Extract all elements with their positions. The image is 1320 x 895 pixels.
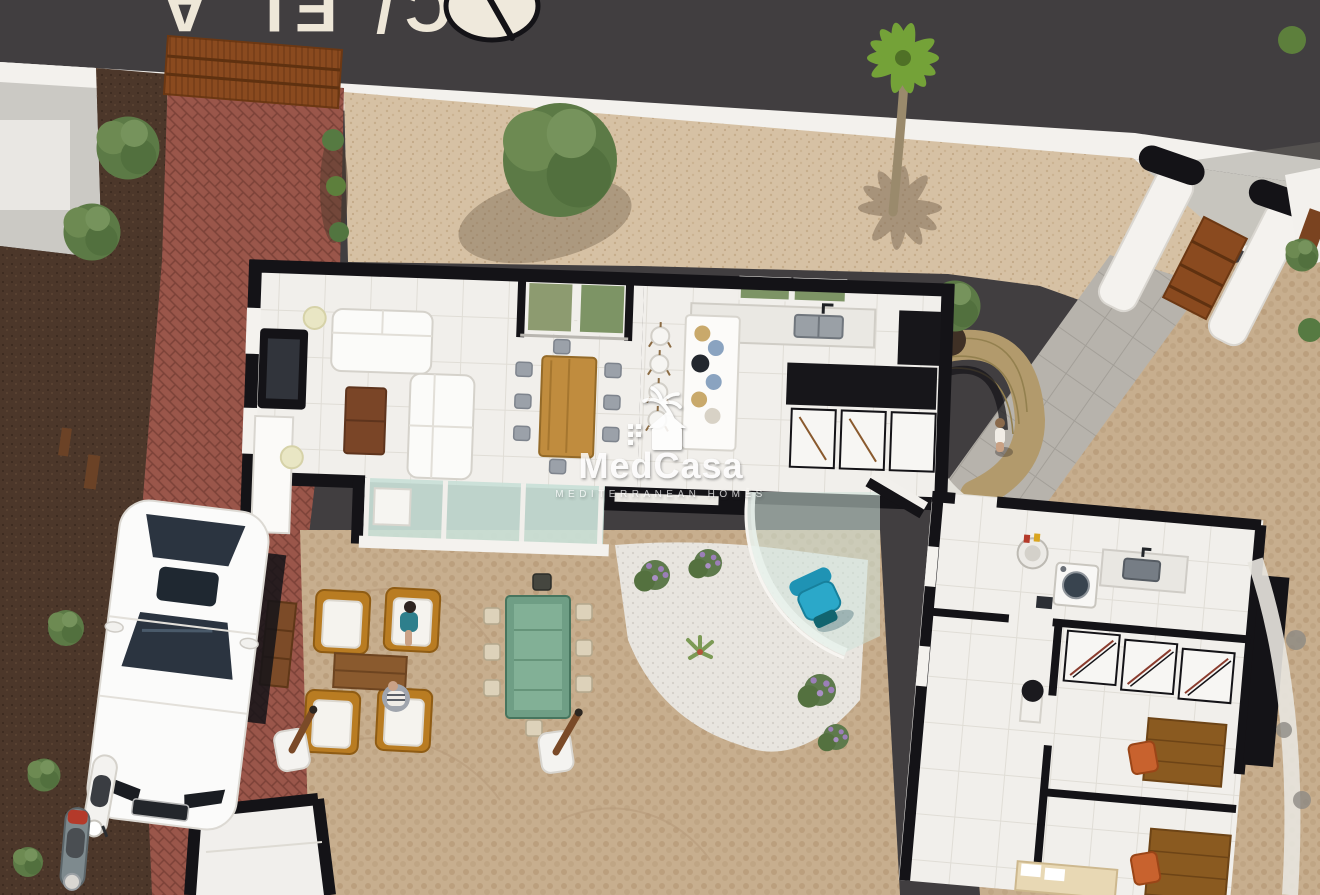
desk-chair (1130, 851, 1161, 885)
outdoor-chair (484, 680, 500, 696)
coffee-table (344, 387, 386, 454)
base-cabinet (890, 412, 936, 472)
wardrobe (1178, 649, 1234, 703)
watermark-brand: MedCasa (578, 445, 743, 486)
washing-machine (1053, 562, 1099, 608)
garden-tree (48, 610, 84, 646)
tall-unit (897, 310, 941, 365)
sofa (331, 309, 433, 374)
dining-chair (549, 459, 565, 474)
window-sill (245, 308, 261, 354)
dining-chair (554, 339, 570, 354)
utility-sink (1123, 558, 1161, 581)
kitchen-island (681, 315, 740, 451)
laundry-basket (1036, 596, 1053, 609)
sofa (407, 373, 475, 479)
outdoor-dining-table (506, 596, 570, 718)
desk-chair (1128, 741, 1159, 775)
render-viewport: C/ EL A (0, 0, 1320, 895)
annex-house (899, 491, 1295, 895)
lounge-armchair (303, 690, 360, 755)
wardrobe (1064, 631, 1120, 685)
dining-chair (603, 427, 619, 442)
dining-chair (516, 362, 532, 377)
garden-tree (1286, 239, 1319, 272)
outdoor-chair (484, 608, 500, 624)
outdoor-chair (576, 640, 592, 656)
wardrobe (1121, 640, 1177, 694)
dining-chair (604, 395, 620, 410)
outdoor-chair (526, 720, 542, 736)
dining-chair (515, 394, 531, 409)
watermark-tagline: MEDITERRANEAN HOMES (555, 489, 767, 500)
dining-chair (605, 363, 621, 378)
dining-chair (514, 426, 530, 441)
dining-table (539, 356, 596, 458)
outdoor-chair (576, 604, 592, 620)
gravel-shrubs (320, 129, 349, 243)
dark-counter (786, 363, 937, 410)
lounge-armchair (313, 590, 370, 655)
garden-tree (64, 204, 121, 261)
media-cabinet (251, 416, 293, 533)
outdoor-chair (576, 676, 592, 692)
outdoor-chair (484, 644, 500, 660)
scene-render: C/ EL A (0, 0, 1320, 895)
floor-lamp (303, 307, 326, 330)
floor-lamp (280, 446, 303, 469)
outdoor-chair-dark (533, 574, 551, 590)
shrub (1278, 26, 1306, 54)
garden-tree (97, 117, 160, 180)
garden-tree (13, 847, 43, 877)
garden-tree (28, 759, 61, 792)
